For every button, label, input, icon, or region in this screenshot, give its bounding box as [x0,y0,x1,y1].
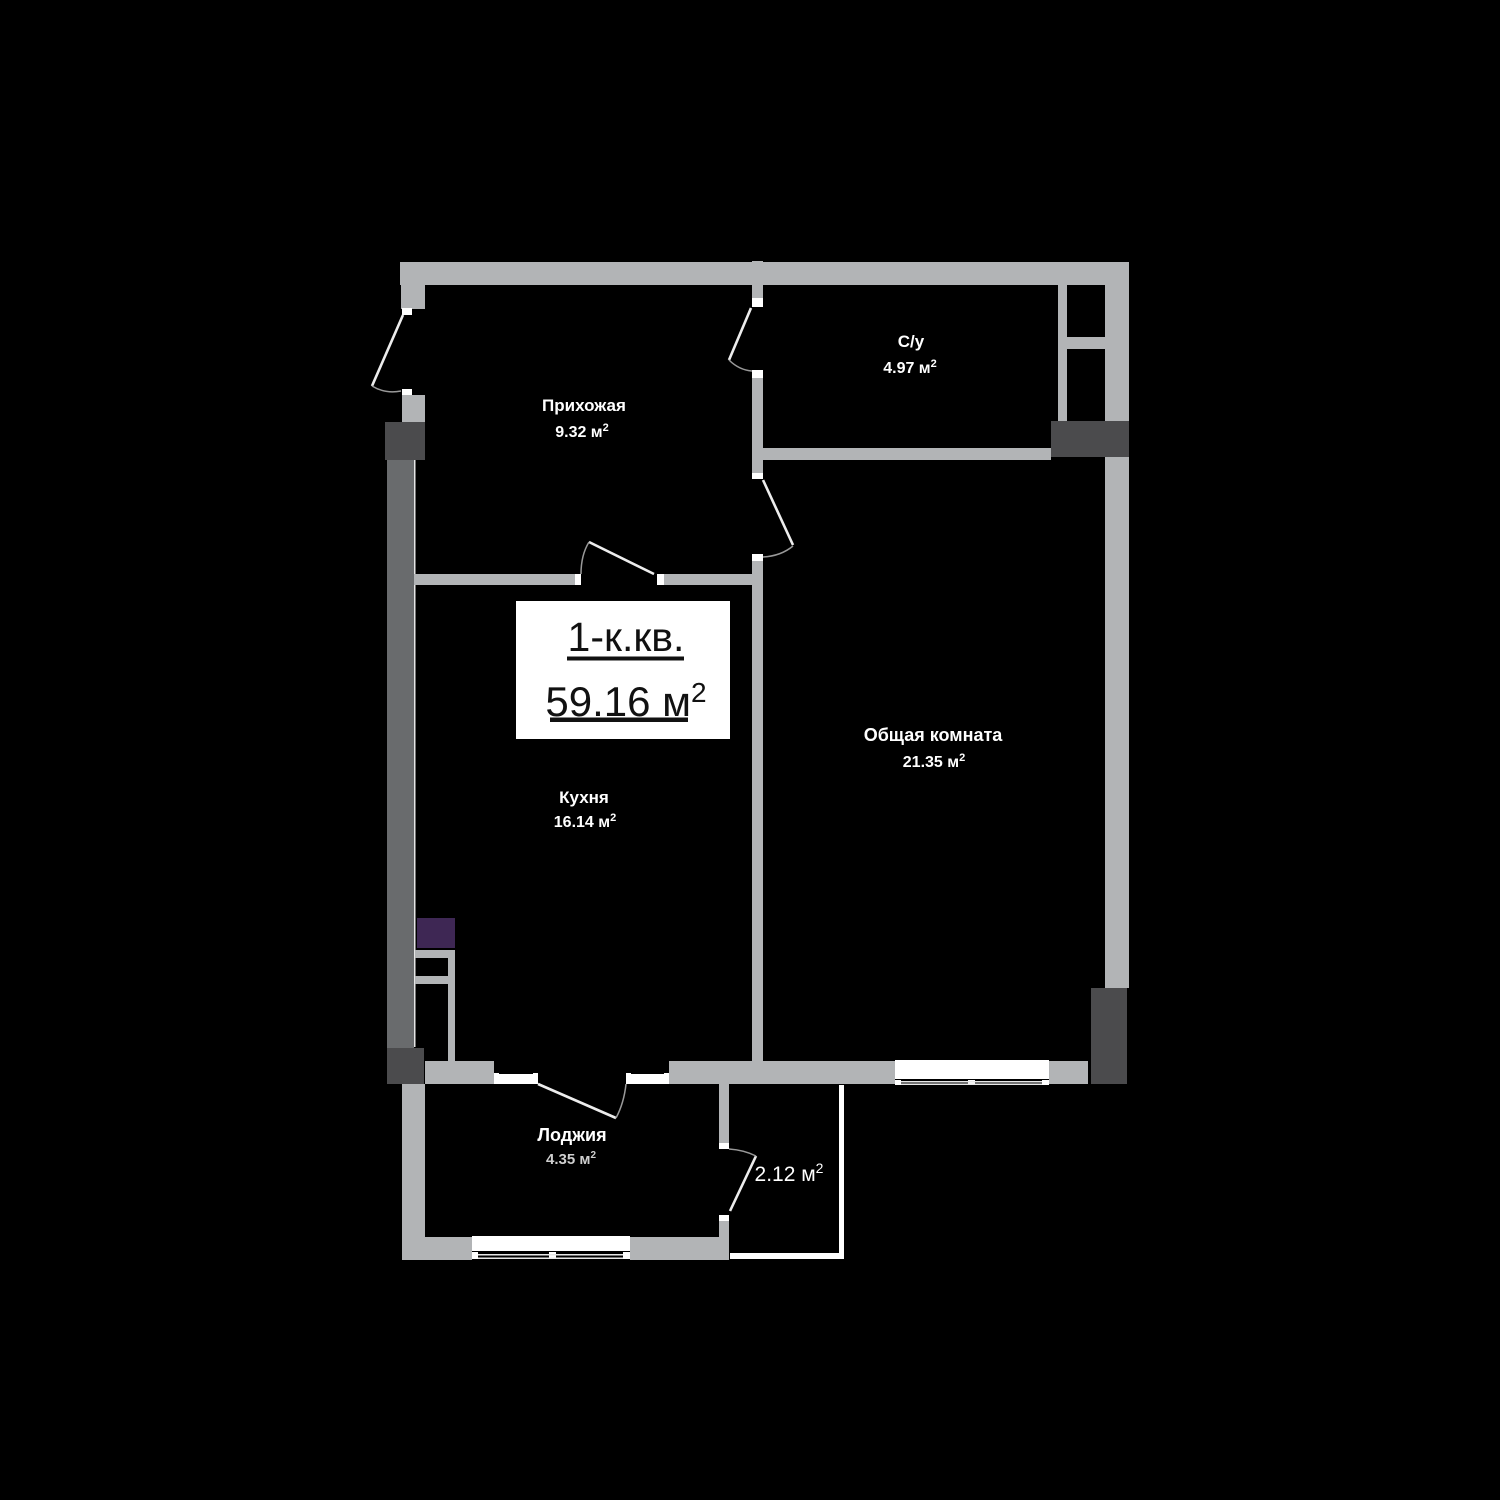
svg-text:21.35 м2: 21.35 м2 [903,752,965,771]
svg-text:1-к.кв.: 1-к.кв. [568,614,685,660]
svg-text:Кухня: Кухня [559,788,609,807]
svg-text:9.32 м2: 9.32 м2 [555,422,609,441]
svg-text:С/у: С/у [898,332,925,351]
svg-text:2.12 м2: 2.12 м2 [755,1160,824,1186]
svg-text:4.35 м2: 4.35 м2 [546,1150,596,1168]
svg-text:Лоджия: Лоджия [537,1125,606,1145]
svg-text:4.97 м2: 4.97 м2 [883,358,937,377]
svg-text:Общая комната: Общая комната [864,725,1004,745]
svg-text:Прихожая: Прихожая [542,396,626,415]
svg-text:16.14 м2: 16.14 м2 [554,812,616,831]
